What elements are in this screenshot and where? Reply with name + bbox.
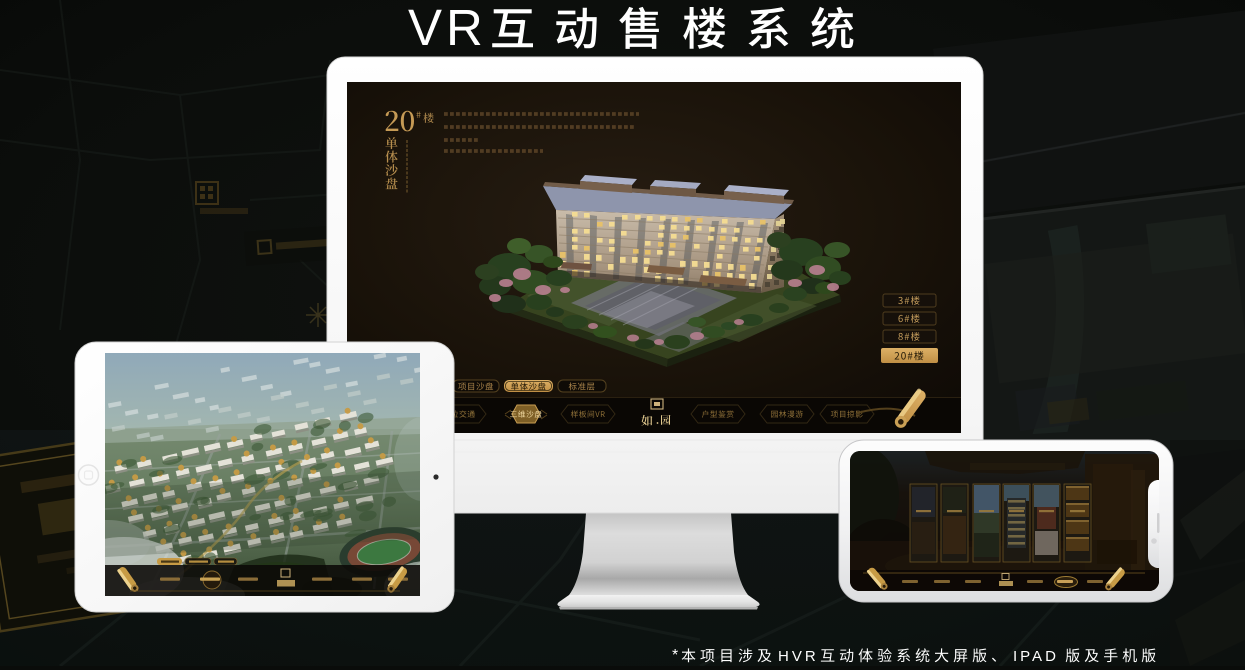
svg-text:IPAD: IPAD	[1013, 648, 1059, 665]
svg-text:VR: VR	[408, 0, 487, 56]
svg-text:HVR: HVR	[778, 648, 819, 665]
